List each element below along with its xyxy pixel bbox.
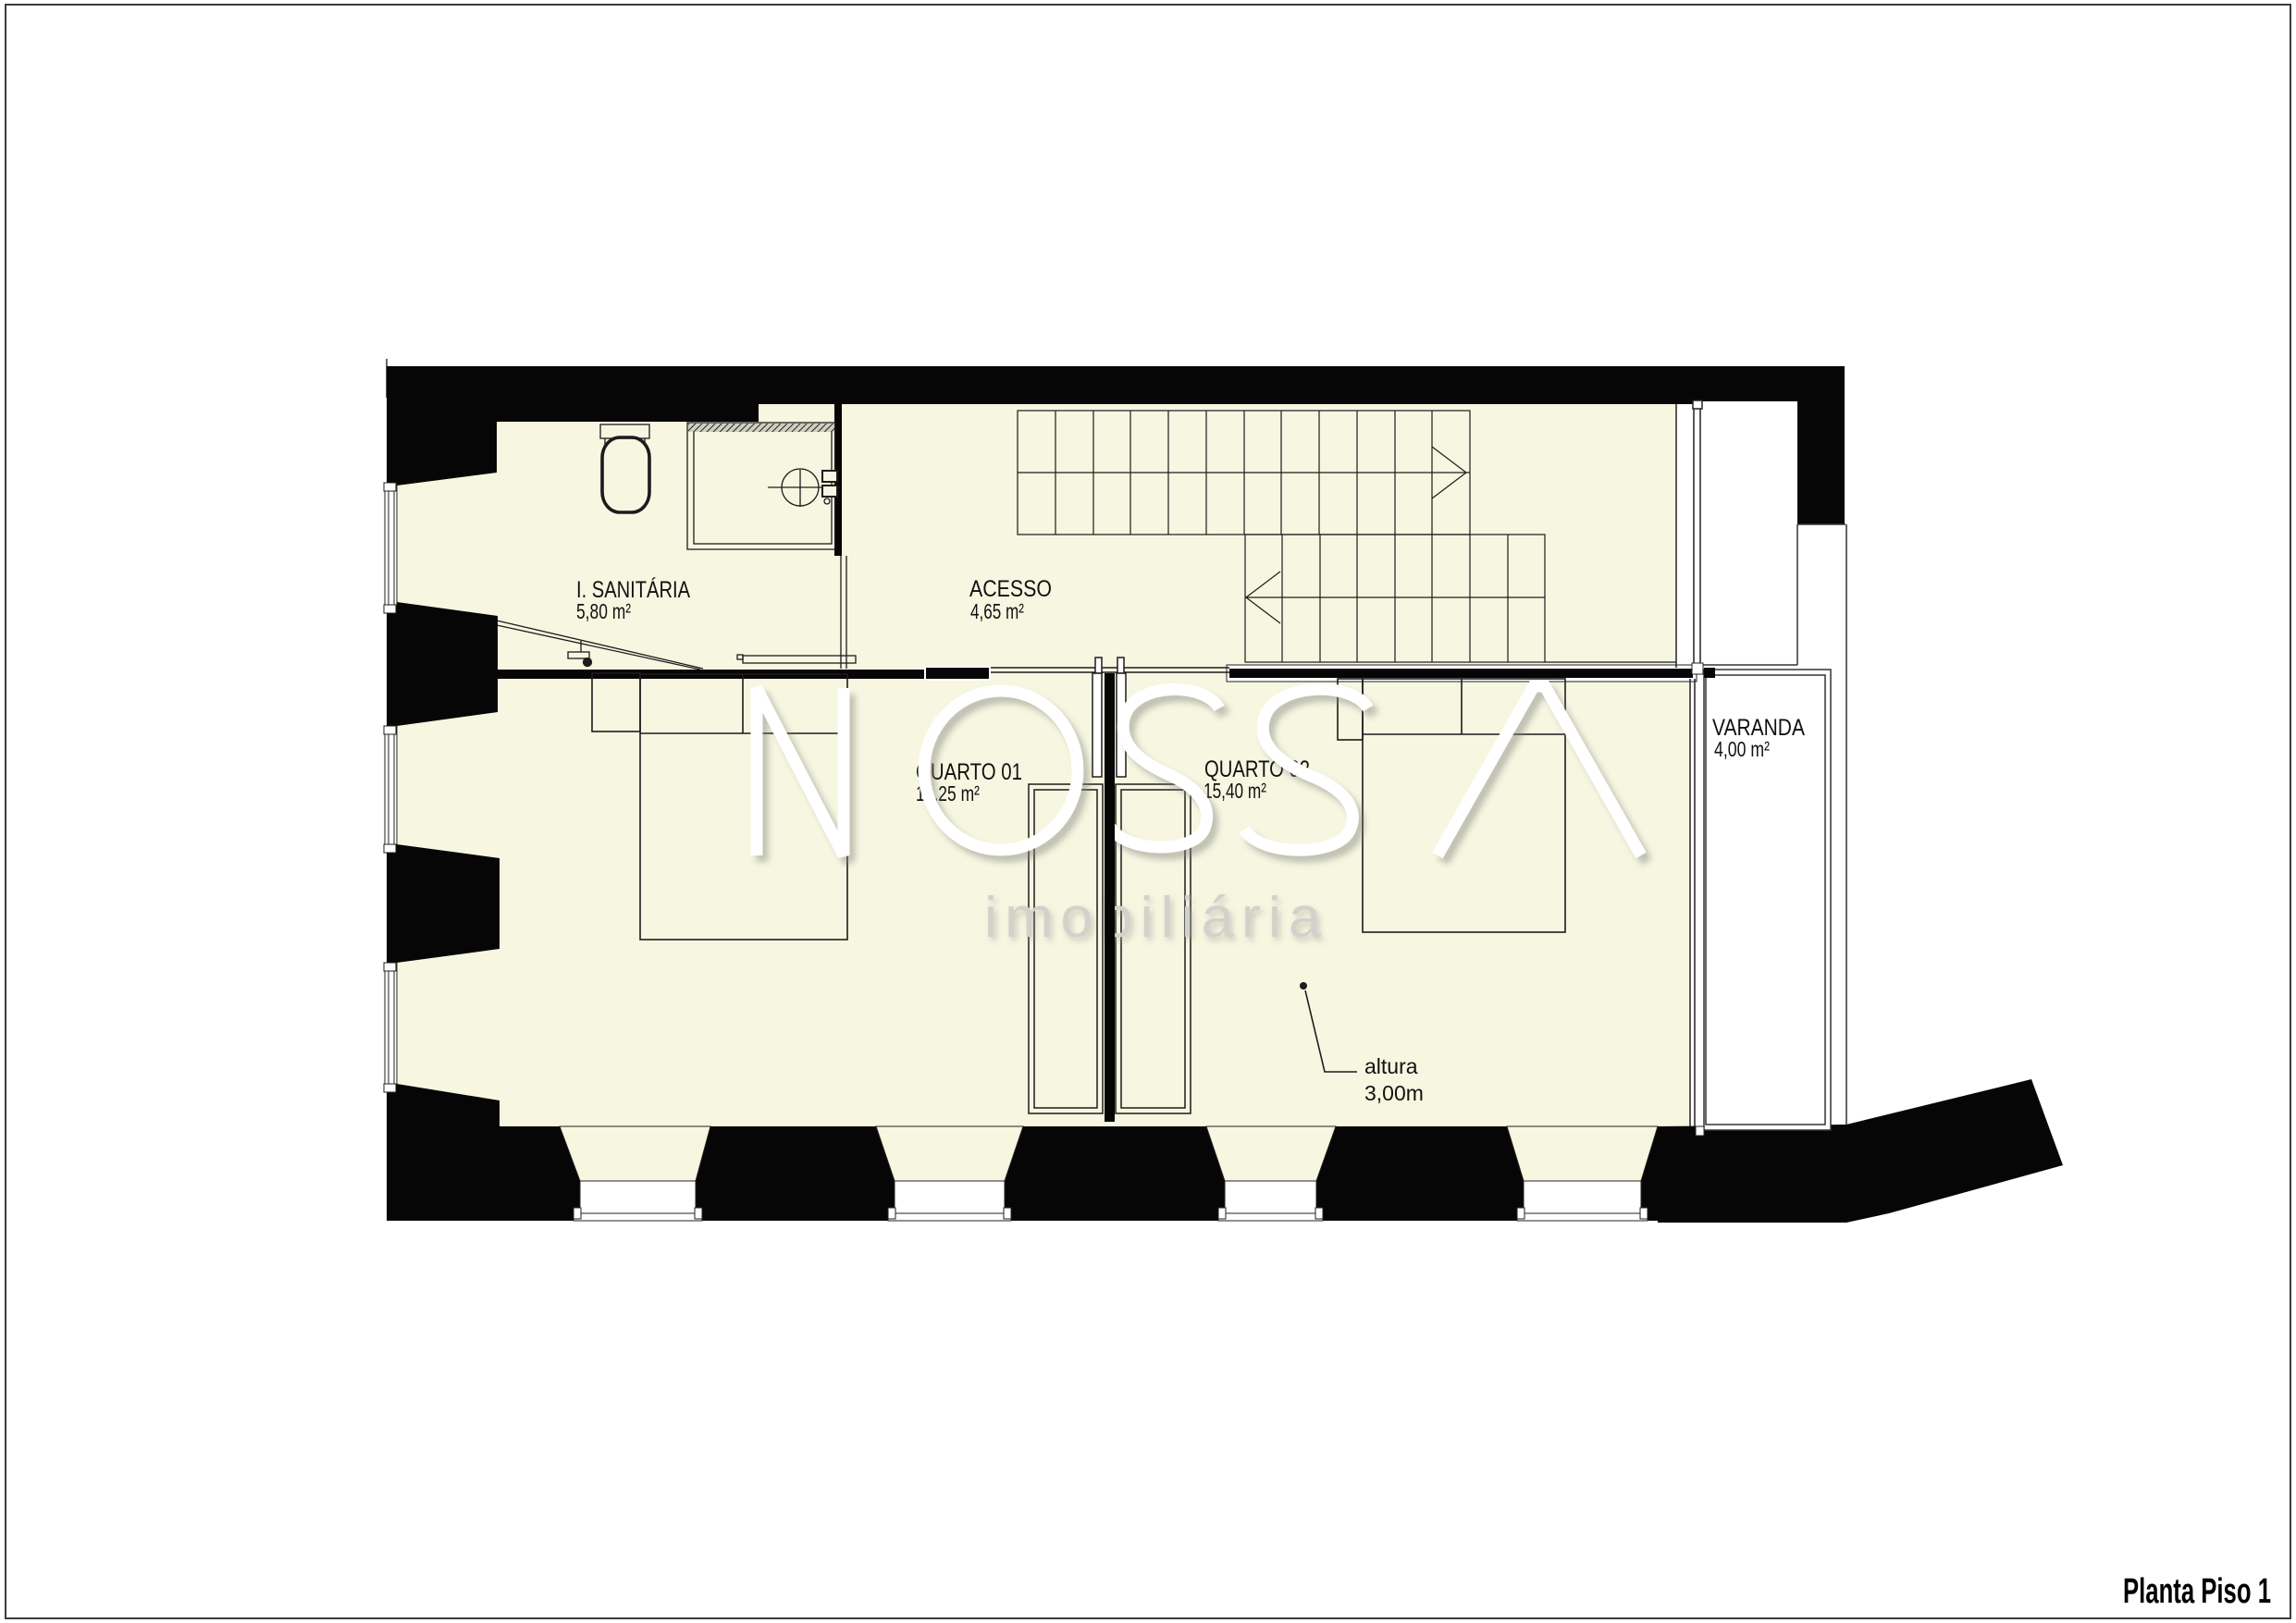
svg-text:Planta Piso 1: Planta Piso 1	[2123, 1572, 2271, 1611]
svg-text:altura: altura	[1364, 1054, 1418, 1078]
svg-text:4,00 m²: 4,00 m²	[1714, 737, 1770, 761]
svg-text:5,80 m²: 5,80 m²	[576, 599, 631, 623]
svg-text:4,65 m²: 4,65 m²	[970, 599, 1024, 623]
svg-text:3,00m: 3,00m	[1364, 1081, 1424, 1105]
svg-text:imobiliária: imobiliária	[984, 886, 1328, 950]
svg-text:ACESSO: ACESSO	[969, 576, 1052, 602]
svg-text:15,40 m²: 15,40 m²	[1204, 779, 1266, 803]
